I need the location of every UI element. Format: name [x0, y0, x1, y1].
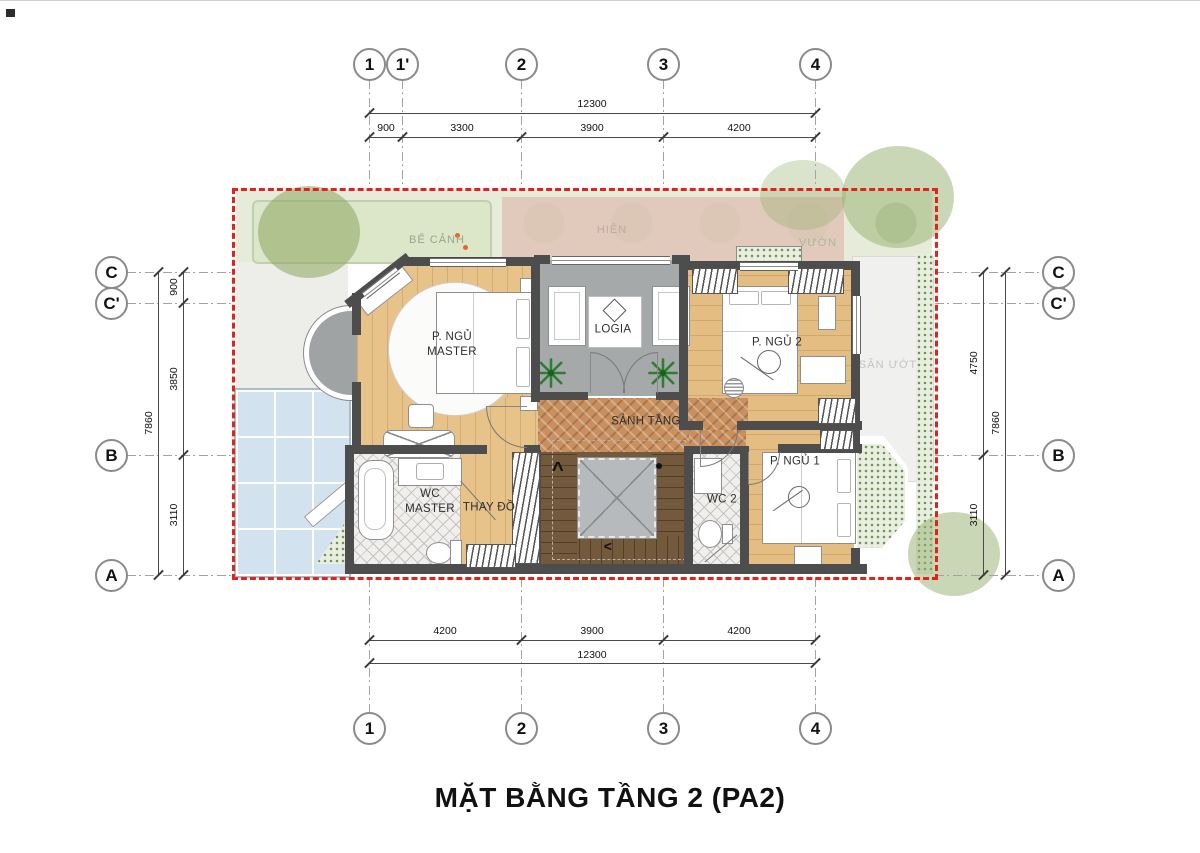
dim-left-seg: 3850: [168, 367, 180, 390]
corner-mark: [6, 9, 15, 17]
pond-tree: [258, 186, 360, 278]
dim-bottom-seg: 3900: [578, 625, 605, 637]
dim-left-total: 7860: [143, 411, 155, 434]
logia-label: LOGIA: [595, 323, 632, 338]
window: [430, 258, 506, 267]
axis-bubble-B: B: [1042, 439, 1075, 472]
bedroom2-label: P. NGỦ 2: [752, 336, 802, 351]
stair-down-arrow: <: [604, 537, 612, 555]
axis-bubble-2: 2: [505, 712, 538, 745]
dim-left-seg: 900: [168, 278, 180, 296]
bedroom1-label: P. NGỦ 1: [770, 455, 820, 470]
stair-up-arrow: ^: [552, 457, 564, 483]
axis-bubble-3: 3: [647, 712, 680, 745]
logia-armchair-left: [548, 286, 586, 346]
closet-hatch: [692, 268, 738, 294]
bathtub: [358, 460, 394, 540]
wc-master-label: WC MASTER: [405, 487, 455, 517]
axis-bubble-C: C: [1042, 256, 1075, 289]
dim-bottom-seg: 4200: [725, 625, 752, 637]
dim-top-seg: 3900: [578, 122, 605, 134]
dim-right-seg: 3110: [968, 504, 980, 527]
dim-top-seg: 900: [375, 122, 397, 134]
window: [552, 256, 670, 265]
pouf: [724, 378, 744, 398]
master-bedroom-label: P. NGỦ MASTER: [427, 330, 477, 360]
axis-bubble-B: B: [95, 439, 128, 472]
dim-bottom-total: 12300: [575, 649, 608, 661]
porch-label: HIÊN: [597, 224, 627, 236]
dim-top-seg: 3300: [448, 122, 475, 134]
window-flower-box: [736, 246, 802, 262]
floor-plan-sheet: BỂ CẢNH HIÊN VƯỜN SÂN ƯỚT ^ <: [0, 0, 1200, 853]
drawing-title: MẶT BẰNG TẦNG 2 (PA2): [350, 782, 870, 814]
tree-top-right: [842, 146, 954, 248]
shelf-bedroom2: [818, 296, 836, 330]
dim-right-total: 7860: [990, 411, 1002, 434]
dim-top-total: 12300: [575, 98, 608, 110]
closet-hatch: [818, 398, 856, 424]
tree-bottom-right: [908, 512, 1000, 596]
axis-bubble-3: 3: [647, 48, 680, 81]
axis-bubble-1: 1: [353, 712, 386, 745]
pond-label: BỂ CẢNH: [409, 234, 465, 246]
axis-bubble-Cp: C': [95, 287, 128, 320]
wardrobe-hatch: [466, 544, 516, 568]
axis-bubble-1: 1: [353, 48, 386, 81]
wet-yard-label: SÂN ƯỚT: [859, 359, 917, 371]
stair-path-dot: [656, 463, 662, 469]
dressing-label: THAY ĐỒ: [463, 501, 515, 516]
tree-top-right-2: [760, 160, 846, 230]
axis-bubble-4: 4: [799, 48, 832, 81]
desk-chair: [408, 404, 434, 428]
window: [740, 262, 798, 271]
top-rule: [0, 0, 1200, 1]
dim-bottom-seg: 4200: [431, 625, 458, 637]
toilet-wc2: [698, 520, 722, 548]
dim-right-seg: 4750: [968, 351, 980, 374]
dim-top-seg: 4200: [725, 122, 752, 134]
closet-hatch: [820, 430, 854, 450]
window: [852, 296, 861, 354]
stair-void: [578, 458, 656, 538]
bench-bedroom2: [800, 356, 846, 384]
axis-bubble-Cp: C': [1042, 287, 1075, 320]
wc2-label: WC 2: [707, 493, 737, 508]
garden-label: VƯỜN: [799, 237, 837, 249]
axis-bubble-C: C: [95, 256, 128, 289]
axis-bubble-A: A: [1042, 559, 1075, 592]
axis-bubble-A: A: [95, 559, 128, 592]
hall-label: SẢNH TẦNG: [611, 415, 681, 430]
side-table-bedroom1: [794, 546, 822, 566]
axis-bubble-2: 2: [505, 48, 538, 81]
closet-hatch: [788, 268, 844, 294]
toilet-tank: [450, 540, 462, 566]
toilet: [426, 542, 452, 564]
wardrobe-hatch: [512, 452, 540, 564]
dim-left-seg: 3110: [168, 504, 180, 527]
sink-basin: [416, 463, 444, 480]
axis-bubble-4: 4: [799, 712, 832, 745]
axis-bubble-1p: 1': [386, 48, 419, 81]
